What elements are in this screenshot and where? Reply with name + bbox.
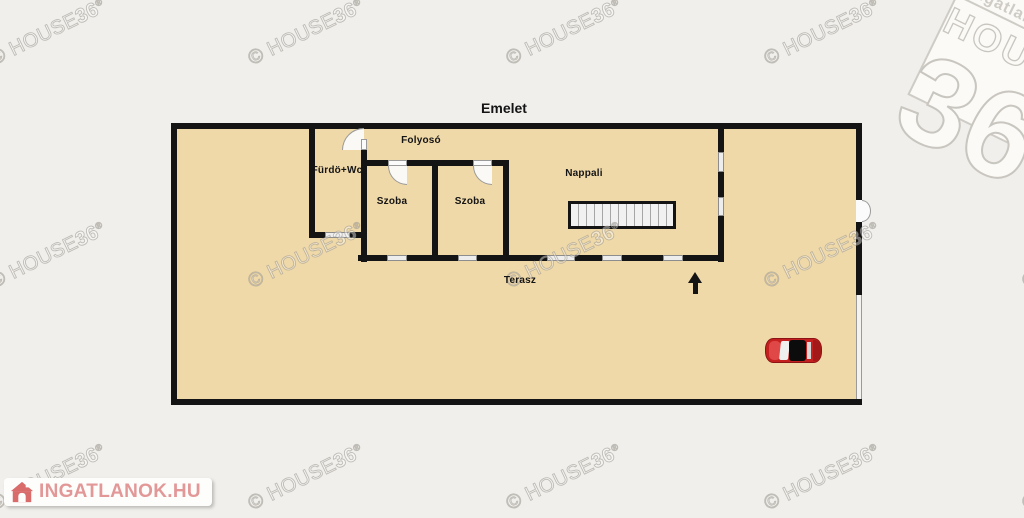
room2-door-leaf — [473, 160, 492, 166]
room-divider-wall — [432, 160, 438, 261]
direction-arrow-icon — [688, 272, 702, 283]
car-rear-window — [807, 342, 811, 359]
outer-wall-left — [171, 123, 177, 405]
terrace-window-2 — [458, 255, 477, 261]
watermark-text: © HOUSE36® — [503, 0, 626, 71]
watermark-text: © HOUSE36® — [1019, 440, 1024, 516]
living-window-2 — [718, 197, 724, 216]
floor-title: Emelet — [454, 100, 554, 116]
bathroom-door-leaf — [361, 139, 367, 150]
room1-door-arc — [388, 166, 407, 185]
room2-door-arc — [473, 166, 492, 185]
ingatlanok-logo-text: INGATLANOK.HU — [39, 481, 201, 503]
terrace-window-1 — [387, 255, 407, 261]
watermark-text: © HOUSE36® — [0, 0, 109, 71]
room-label-living: Nappali — [534, 168, 634, 179]
terrace-open-edge — [856, 295, 862, 399]
watermark-text: © HOUSE36® — [245, 440, 368, 516]
terrace-window-5 — [663, 255, 683, 261]
ingatlanok-house-icon — [9, 480, 35, 504]
bathroom-left-wall — [309, 129, 315, 238]
room-label-bathroom: Fürdö+Wc — [287, 165, 387, 176]
watermark-text: © HOUSE36® — [0, 218, 109, 294]
car-roof — [789, 340, 806, 361]
living-right-wall-seg1 — [718, 129, 724, 152]
watermark-text: © HOUSE36® — [503, 440, 626, 516]
living-window-1 — [718, 152, 724, 172]
room2-right-wall — [503, 160, 509, 261]
house36-logo: Ingatlanhálózat HOUSE 36 — [845, 0, 1024, 230]
car-icon — [765, 338, 822, 363]
room-label-room2: Szoba — [420, 196, 520, 207]
room-label-hallway: Folyosó — [371, 135, 471, 146]
outer-wall-bottom — [171, 399, 862, 405]
watermark-text: © HOUSE36® — [245, 0, 368, 71]
room1-door-leaf — [388, 160, 407, 166]
living-right-wall-seg2 — [718, 172, 724, 197]
watermark-text: © HOUSE36® — [761, 440, 884, 516]
terrace-window-4 — [602, 255, 622, 261]
room-label-terrace: Terasz — [470, 275, 570, 286]
ingatlanok-logo: INGATLANOK.HU — [4, 478, 212, 506]
direction-arrow-stem — [693, 283, 698, 294]
stairs — [568, 201, 676, 229]
hallway-wall-seg2 — [407, 160, 473, 166]
outer-wall-top — [171, 123, 862, 129]
